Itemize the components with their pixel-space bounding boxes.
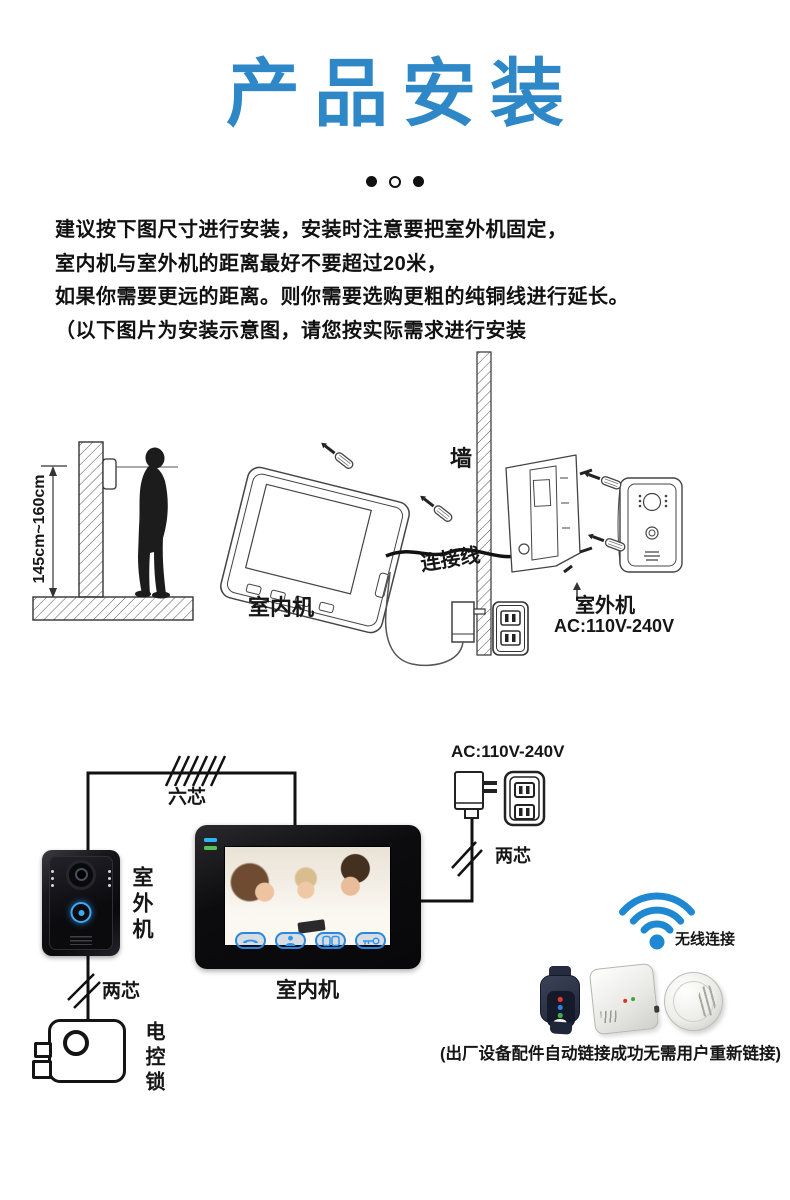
wall-label: 墙 [450, 441, 472, 473]
outdoor-unit-sketch [618, 478, 682, 572]
power-label-1: AC:110V-240V [554, 616, 674, 637]
person-silhouette [135, 446, 170, 598]
indoor-unit-label-1: 室内机 [248, 590, 314, 622]
doorbell-on-wall [103, 459, 116, 489]
wireless-label: 无线连接 [675, 928, 735, 949]
auto-link-note: (出厂设备配件自动链接成功无需用户重新链接) [440, 1040, 781, 1064]
monitor-screen-photo [224, 846, 391, 946]
wall-outlet-1 [493, 602, 528, 655]
indoor-monitor [195, 825, 421, 969]
power-wire [421, 818, 472, 901]
wristband-remote [540, 966, 580, 1034]
carousel-dot-1 [366, 176, 377, 187]
gas-detector [589, 963, 660, 1035]
status-led-blue [204, 838, 217, 842]
mounting-height-sketch [33, 442, 193, 620]
product-installation-page: 产品安装 建议按下图尺寸进行安装，安装时注意要把室外机固定， 室内机与室外机的距… [0, 0, 790, 1200]
outdoor-unit [42, 850, 120, 956]
wifi-indicator [612, 884, 704, 961]
smoke-detector [664, 972, 723, 1031]
power-adapter-1 [386, 572, 485, 665]
monitor-button [275, 932, 306, 949]
intercom-icon [321, 935, 341, 947]
wall-outlet-2 [505, 772, 544, 825]
wall-post [79, 442, 103, 597]
ir-led-column-right [108, 870, 111, 873]
carousel-dot-2 [389, 176, 401, 188]
intro-line-1: 建议按下图尺寸进行安装，安装时注意要把室外机固定， [55, 214, 755, 248]
gas-detector-switch [654, 1005, 660, 1012]
two-core-label-left: 两芯 [102, 976, 140, 1003]
unlock-button [355, 932, 386, 949]
intro-line-4: （以下图片为安装示意图，请您按实际需求进行安装 [55, 315, 755, 349]
installation-diagram-1 [0, 348, 790, 693]
intercom-button [315, 932, 346, 949]
hangup-button [235, 932, 266, 949]
key-icon [361, 935, 381, 947]
ir-led-column-left [51, 870, 54, 873]
gas-detector-vents [600, 1010, 617, 1024]
wristband-led-red [558, 997, 563, 1002]
lock-latch-large [32, 1060, 52, 1079]
power-adapter-2 [455, 772, 497, 818]
electric-lock [48, 1019, 126, 1083]
intro-text: 建议按下图尺寸进行安装，安装时注意要把室外机固定， 室内机与室外机的距离最好不要… [55, 214, 755, 348]
indoor-unit-label-2: 室内机 [276, 974, 339, 1004]
intro-line-3: 如果你需要更远的距离。则你需要选购更粗的纯铜线进行延长。 [55, 281, 755, 315]
two-core-label-right: 两芯 [495, 842, 531, 868]
lock-cylinder [63, 1030, 89, 1056]
carousel-dots [0, 176, 790, 188]
power-label-2: AC:110V-240V [451, 742, 564, 762]
smoke-detector-vents [698, 985, 716, 1017]
electric-lock-label: 电控锁 [139, 1021, 168, 1096]
handset-icon [241, 935, 260, 946]
speaker-grill [70, 936, 92, 945]
outdoor-bracket-sketch [506, 455, 580, 572]
touch-button-row [235, 932, 386, 949]
carousel-dot-3 [413, 176, 424, 187]
outdoor-unit-label-1: 室外机 [575, 589, 635, 618]
status-led-green [204, 846, 217, 850]
intro-line-2: 室内机与室外机的距离最好不要超过20米， [55, 248, 755, 282]
gas-led-green [631, 997, 635, 1001]
page-title: 产品安装 [0, 34, 790, 141]
mounting-height-label: 145cm~160cm [31, 472, 49, 586]
doorbell-button [71, 902, 92, 923]
gas-led-red [623, 999, 627, 1003]
person-icon [281, 935, 300, 947]
wristband-body [540, 975, 580, 1023]
floor [33, 597, 193, 620]
outdoor-unit-label-2: 室外机 [126, 866, 156, 944]
wristband-strap-bottom [550, 1021, 573, 1035]
camera-icon [66, 860, 96, 890]
wristband-led-green [558, 1013, 563, 1018]
wristband-led-blue [558, 1005, 563, 1010]
six-core-label: 六芯 [168, 782, 206, 809]
lock-latch-small [34, 1042, 52, 1058]
